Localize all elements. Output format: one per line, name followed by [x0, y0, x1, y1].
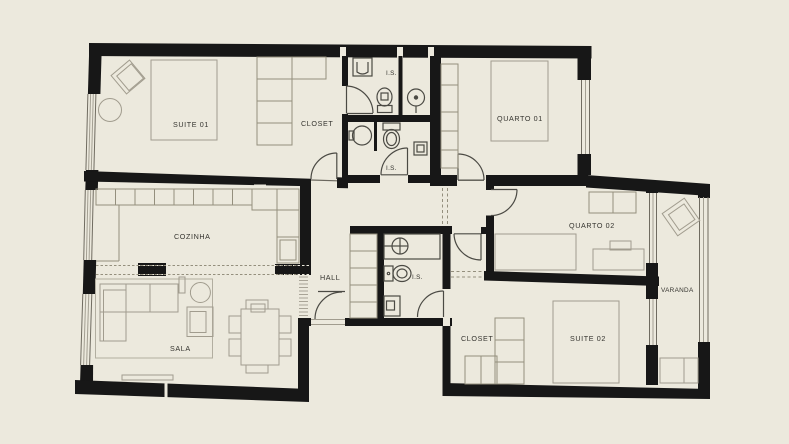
svg-text:SUITE 01: SUITE 01: [173, 120, 209, 129]
svg-text:CLOSET: CLOSET: [461, 334, 493, 343]
svg-text:COZINHA: COZINHA: [174, 232, 211, 241]
svg-text:SALA: SALA: [170, 344, 191, 353]
svg-text:SUITE 02: SUITE 02: [570, 334, 606, 343]
svg-text:HALL: HALL: [320, 273, 340, 282]
svg-text:I.S.: I.S.: [386, 165, 397, 172]
svg-text:VARANDA: VARANDA: [661, 287, 694, 294]
svg-text:QUARTO 02: QUARTO 02: [569, 221, 615, 230]
svg-text:I.S.: I.S.: [386, 70, 397, 77]
svg-text:QUARTO 01: QUARTO 01: [497, 114, 543, 123]
svg-text:I.S.: I.S.: [412, 274, 423, 281]
svg-text:CLOSET: CLOSET: [301, 119, 333, 128]
